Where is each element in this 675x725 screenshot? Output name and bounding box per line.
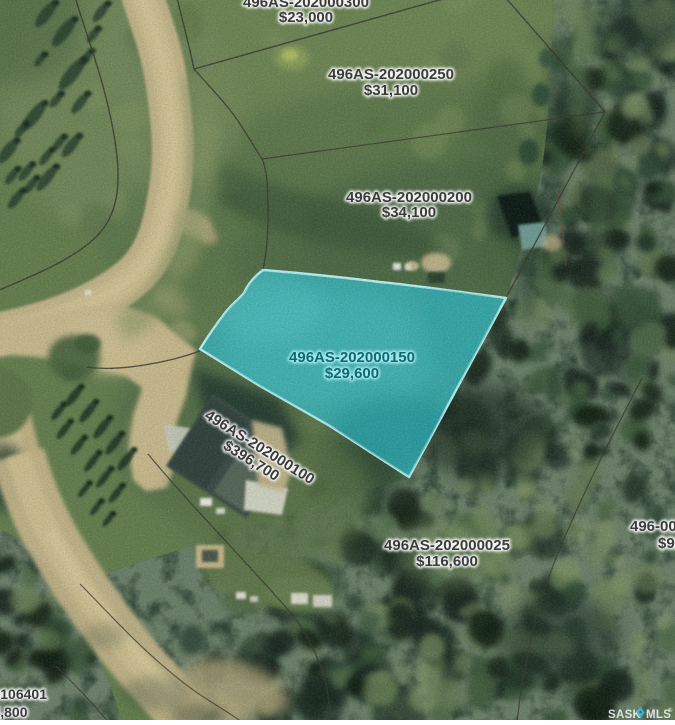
svg-text:$23,000: $23,000 <box>279 9 333 26</box>
svg-text:$29,600: $29,600 <box>325 365 379 382</box>
svg-text:496AS-202000025: 496AS-202000025 <box>384 537 510 554</box>
svg-text:SASK: SASK <box>608 709 642 720</box>
svg-text:$116,600: $116,600 <box>416 553 478 570</box>
svg-text:496-0012345: 496-0012345 <box>630 518 675 535</box>
svg-text:$91,200: $91,200 <box>658 535 675 552</box>
svg-text:®: ® <box>668 707 673 714</box>
svg-text:9106401: 9106401 <box>0 686 47 702</box>
svg-text:$34,100: $34,100 <box>382 204 436 221</box>
svg-text:$31,100: $31,100 <box>364 82 418 99</box>
svg-text:496AS-202000250: 496AS-202000250 <box>328 66 454 83</box>
svg-text:$54,800: $54,800 <box>0 704 28 720</box>
svg-text:496AS-202000150: 496AS-202000150 <box>289 349 415 366</box>
